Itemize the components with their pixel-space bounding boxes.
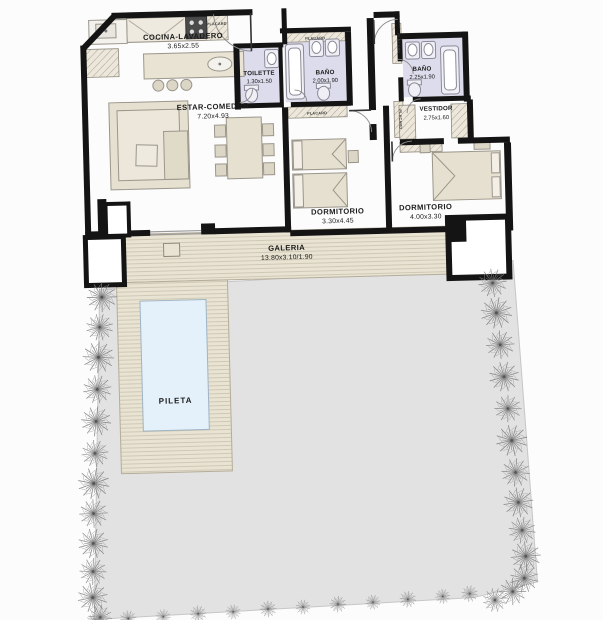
placard-label: PLACARD <box>396 33 401 53</box>
chair <box>263 163 274 175</box>
vestidor-dims: 2.75x1.60 <box>423 115 449 122</box>
galeria-dims: 13.80x3.10/1.90 <box>261 254 313 262</box>
bano1-dims: 2.00x1.90 <box>312 78 338 85</box>
dorm2-label: DORMITORIO <box>399 202 452 212</box>
cocina-dims: 3.65x2.55 <box>167 43 199 51</box>
galeria-label: GALERIA <box>268 243 305 253</box>
bano2-dims: 2.25x1.90 <box>409 74 435 81</box>
pileta-label: PILETA <box>159 396 193 406</box>
estar-label: ESTAR-COMEDOR <box>177 101 250 112</box>
pool <box>140 299 209 431</box>
floor-plan-drawing: COCINA-LAVADERO 3.65x2.55 ESTAR-COMEDOR … <box>0 0 603 620</box>
stool <box>153 80 164 91</box>
placard-label: PLACARD <box>398 109 403 129</box>
stool <box>167 80 178 91</box>
galeria-side-table <box>163 243 179 256</box>
floor-plan-stage: COCINA-LAVADERO 3.65x2.55 ESTAR-COMEDOR … <box>0 0 603 620</box>
dorm2-dims: 4.00x3.30 <box>410 213 442 221</box>
bano1-label: BAÑO <box>315 69 334 76</box>
chair <box>262 124 273 136</box>
chair <box>263 144 274 156</box>
vestidor-label: VESTIDOR <box>419 105 453 113</box>
estar-dims: 7.20x4.93 <box>197 113 229 121</box>
dorm1-label: DORMITORIO <box>311 206 364 216</box>
toilette-label: TOILETTE <box>243 70 275 78</box>
placard-label: PLACARD <box>207 22 227 27</box>
placard-label: PLACARD <box>305 36 325 41</box>
dining-table <box>226 117 263 179</box>
chair <box>214 125 225 137</box>
nightstand <box>420 144 430 153</box>
placard-label: PLACARD <box>307 111 327 116</box>
chair <box>215 145 226 157</box>
nightstand <box>348 150 358 162</box>
coffee-table <box>136 145 158 167</box>
bano2-label: BAÑO <box>412 65 431 72</box>
dorm1-dims: 3.30x4.45 <box>322 218 354 226</box>
chair <box>215 164 226 176</box>
toilette-dims: 1.30x1.50 <box>246 79 272 86</box>
stool <box>181 79 192 90</box>
